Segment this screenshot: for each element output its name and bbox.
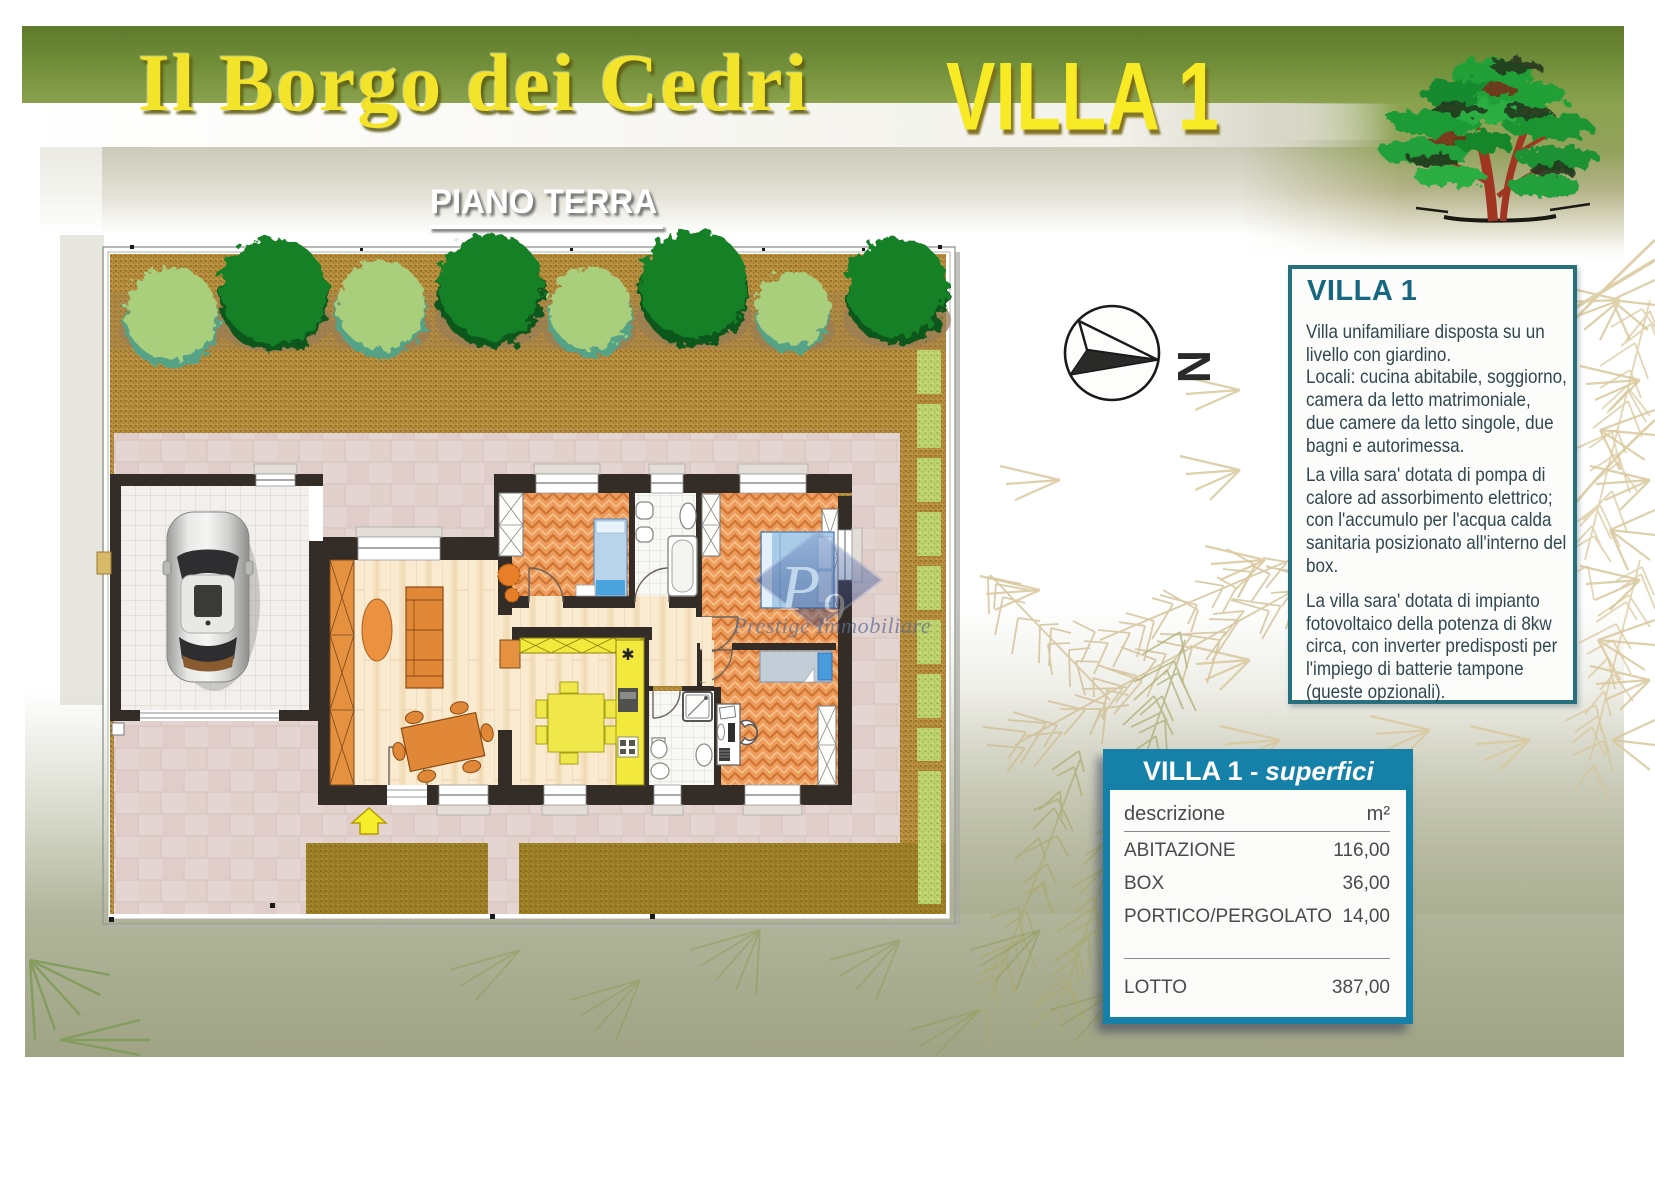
svg-text:Prestige Immobiliare: Prestige Immobiliare (732, 613, 931, 638)
svg-text:✱: ✱ (621, 647, 634, 664)
svg-text:N: N (1168, 350, 1220, 383)
